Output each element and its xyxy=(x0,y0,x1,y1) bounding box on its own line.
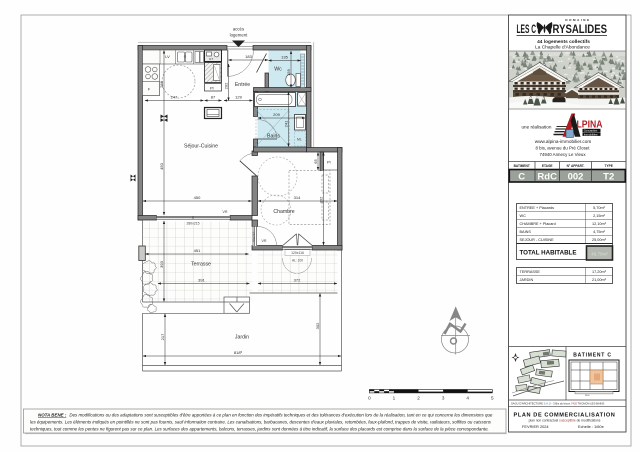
svg-text:2: 2 xyxy=(417,396,420,401)
svg-text:002: 002 xyxy=(568,171,584,182)
svg-text:391: 391 xyxy=(198,278,205,283)
svg-text:129: 129 xyxy=(235,95,242,100)
svg-text:JARDIN: JARDIN xyxy=(520,278,534,282)
svg-text:NOTA BENE :Des modifications o: NOTA BENE :Des modifications ou des adap… xyxy=(38,412,493,417)
svg-text:450: 450 xyxy=(194,195,201,200)
svg-text:74940 Annecy Le Vieux: 74940 Annecy Le Vieux xyxy=(539,152,586,157)
svg-text:accès: accès xyxy=(233,27,244,32)
svg-text:314: 314 xyxy=(294,195,301,200)
svg-text:ENTREE + Placards: ENTREE + Placards xyxy=(520,206,555,210)
svg-text:1: 1 xyxy=(393,396,396,401)
svg-text:288: 288 xyxy=(159,80,164,87)
svg-text:TYPE: TYPE xyxy=(605,164,613,168)
svg-text:CHAMBRE + Placard: CHAMBRE + Placard xyxy=(520,222,556,226)
svg-text:LES C: LES C xyxy=(517,24,537,36)
svg-text:120x116: 120x116 xyxy=(291,251,304,255)
svg-text:VR: VR xyxy=(223,210,228,214)
svg-text:65: 65 xyxy=(313,159,318,164)
svg-text:302: 302 xyxy=(318,196,323,203)
svg-text:450: 450 xyxy=(159,162,164,169)
svg-text:LV: LV xyxy=(165,54,170,59)
svg-text:87: 87 xyxy=(211,95,216,100)
svg-text:Pl: Pl xyxy=(210,86,214,91)
svg-text:183: 183 xyxy=(245,54,252,59)
svg-text:AL: 100: AL: 100 xyxy=(292,259,303,263)
svg-text:C: C xyxy=(518,171,525,182)
svg-text:159: 159 xyxy=(286,68,291,75)
svg-text:Entrée: Entrée xyxy=(235,82,250,88)
svg-text:12,10m²: 12,10m² xyxy=(592,222,607,226)
svg-text:372: 372 xyxy=(294,278,301,283)
svg-text:SAGU D'ARCHITECTURE S.A.O -: SAGU D'ARCHITECTURE S.A.O - 3 Bis du bin… xyxy=(511,401,604,405)
svg-text:logement: logement xyxy=(230,33,248,38)
svg-text:25,00m²: 25,00m² xyxy=(592,238,607,242)
svg-text:SEJOUR - CUISINE: SEJOUR - CUISINE xyxy=(520,238,555,242)
svg-text:Jardin: Jardin xyxy=(235,335,249,341)
svg-text:209: 209 xyxy=(273,112,280,117)
svg-text:WC: WC xyxy=(520,214,527,218)
svg-text:49,70m²: 49,70m² xyxy=(591,252,608,257)
svg-text:Bains: Bains xyxy=(267,134,280,140)
svg-text:0: 0 xyxy=(368,396,371,401)
svg-text:DOMAINE: DOMAINE xyxy=(565,18,590,22)
svg-text:393: 393 xyxy=(159,260,164,267)
svg-text:T2: T2 xyxy=(603,171,614,182)
svg-text:451: 451 xyxy=(194,248,201,253)
svg-text:4: 4 xyxy=(466,396,469,401)
svg-text:TOTAL HABITABLE: TOTAL HABITABLE xyxy=(520,250,577,257)
svg-text:241: 241 xyxy=(283,120,288,127)
svg-text:Séjour-Cuisine: Séjour-Cuisine xyxy=(184,144,218,150)
svg-text:www.alpina-immobilier.com: www.alpina-immobilier.com xyxy=(535,139,592,144)
svg-text:3: 3 xyxy=(442,396,445,401)
svg-text:17,20m²: 17,20m² xyxy=(592,270,607,274)
svg-text:247: 247 xyxy=(171,95,178,100)
svg-text:GT: GT xyxy=(209,57,213,61)
svg-text:5,70m²: 5,70m² xyxy=(593,206,606,210)
svg-text:Pl: Pl xyxy=(327,160,331,165)
svg-text:RdC: RdC xyxy=(537,171,557,182)
svg-text:BATIMENT C: BATIMENT C xyxy=(573,353,611,359)
svg-text:VR: VR xyxy=(262,239,267,243)
svg-text:ETAGE: ETAGE xyxy=(542,164,553,168)
svg-text:FEVRIER 2024: FEVRIER 2024 xyxy=(522,424,549,429)
svg-text:135: 135 xyxy=(281,55,288,60)
svg-text:techniques, tout comme les pen: techniques, tout comme les pentes ne fig… xyxy=(30,427,489,432)
svg-text:BATIMENT: BATIMENT xyxy=(514,164,530,168)
svg-text:La Chapelle d'Abondance: La Chapelle d'Abondance xyxy=(535,45,590,51)
svg-text:44 logements collectifs: 44 logements collectifs xyxy=(537,39,590,45)
svg-text:2,15m²: 2,15m² xyxy=(593,214,606,218)
svg-text:4,75m²: 4,75m² xyxy=(593,230,606,234)
svg-text:N° APPART.: N° APPART. xyxy=(567,164,585,168)
svg-text:Echelle : 1/60e: Echelle : 1/60e xyxy=(578,424,604,429)
svg-text:76x215: 76x215 xyxy=(252,232,256,243)
svg-text:217: 217 xyxy=(160,333,165,340)
svg-text:RYSALIDES: RYSALIDES xyxy=(553,24,608,36)
svg-text:TERRASSE: TERRASSE xyxy=(520,270,541,274)
svg-text:302: 302 xyxy=(315,322,320,329)
svg-text:une réalisation: une réalisation xyxy=(522,125,552,130)
svg-text:Immobilière: Immobilière xyxy=(584,132,598,136)
svg-text:5: 5 xyxy=(491,396,494,401)
svg-text:202: 202 xyxy=(223,82,228,89)
svg-text:8 bis, avenue du Pré Closet: 8 bis, avenue du Pré Closet xyxy=(536,146,591,151)
svg-text:Terrasse: Terrasse xyxy=(191,262,211,268)
svg-text:280x215: 280x215 xyxy=(186,222,199,226)
svg-text:RUE: RUE xyxy=(585,395,590,397)
svg-text:Wc: Wc xyxy=(274,67,282,73)
svg-text:Chambre: Chambre xyxy=(273,209,294,215)
svg-text:21,00m²: 21,00m² xyxy=(592,278,607,282)
svg-text:Conception: Conception xyxy=(584,129,598,133)
svg-text:ML: ML xyxy=(297,138,302,142)
svg-text:les équipements. Les éléments: les équipements. Les éléments indiqués e… xyxy=(30,419,492,424)
svg-text:plan non contractuel susceptib: plan non contractuel susceptible de modi… xyxy=(529,418,601,422)
svg-text:BAINS: BAINS xyxy=(520,230,532,234)
